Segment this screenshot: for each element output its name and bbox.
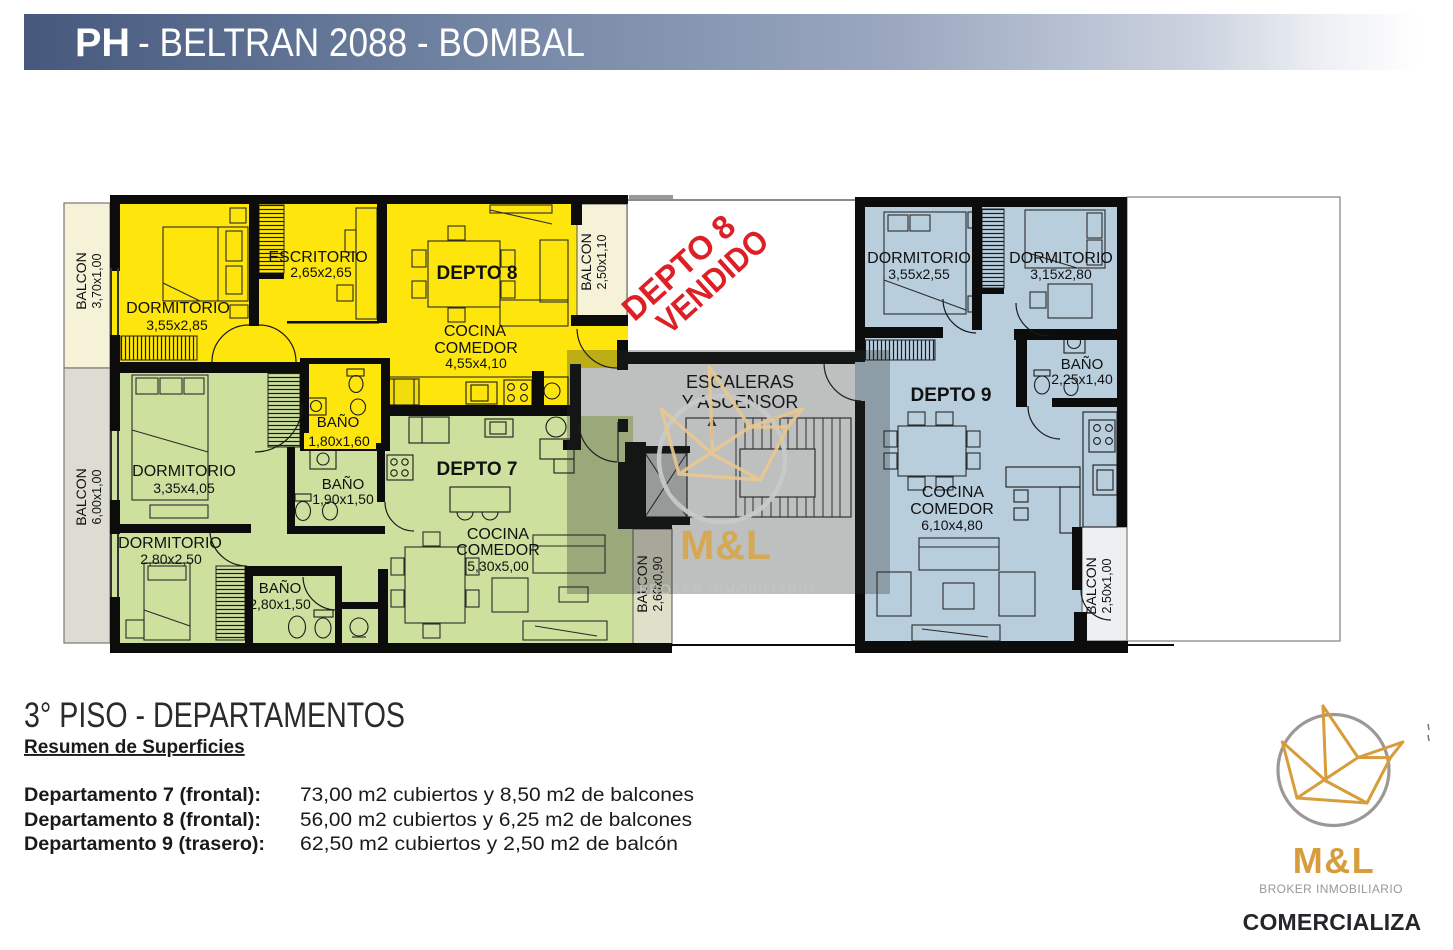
svg-text:COMERCIALIZA: COMERCIALIZA (1243, 909, 1422, 935)
svg-text:BAÑO: BAÑO (259, 580, 302, 597)
svg-text:2,80x1,50: 2,80x1,50 (249, 596, 311, 612)
svg-text:DEPTO 7: DEPTO 7 (437, 459, 518, 480)
svg-text:BALCON: BALCON (73, 468, 89, 526)
svg-text:BROKER INMOBILIARIO: BROKER INMOBILIARIO (1259, 882, 1403, 896)
svg-text:3,55x2,55: 3,55x2,55 (888, 266, 950, 282)
svg-text:1,80x1,60: 1,80x1,60 (308, 433, 370, 449)
svg-text:COCINA: COCINA (444, 323, 507, 340)
svg-text:COMEDOR: COMEDOR (456, 542, 540, 559)
svg-text:73,00 m2 cubiertos y 8,50 m2 d: 73,00 m2 cubiertos y 8,50 m2 de balcones (300, 785, 694, 806)
svg-text:56,00 m2 cubiertos y 6,25 m2 d: 56,00 m2 cubiertos y 6,25 m2 de balcones (300, 810, 692, 831)
svg-text:M&L: M&L (680, 522, 772, 568)
svg-text:PH: PH (75, 21, 130, 65)
svg-text:3,70x1,00: 3,70x1,00 (90, 254, 104, 309)
svg-text:3,15x2,80: 3,15x2,80 (1030, 266, 1092, 282)
svg-text:BROKER INMOBILIARIO: BROKER INMOBILIARIO (639, 582, 815, 597)
svg-text:- BELTRAN 2088 - BOMBAL: - BELTRAN 2088 - BOMBAL (138, 21, 585, 65)
svg-text:1,90x1,50: 1,90x1,50 (312, 491, 374, 507)
svg-text:DORMITORIO: DORMITORIO (118, 535, 222, 552)
svg-text:COCINA: COCINA (467, 526, 530, 543)
svg-text:COCINA: COCINA (922, 484, 985, 501)
svg-text:2,25x1,40: 2,25x1,40 (1051, 371, 1113, 387)
svg-text:3° PISO - DEPARTAMENTOS: 3° PISO - DEPARTAMENTOS (24, 696, 405, 735)
svg-text:COMEDOR: COMEDOR (910, 501, 994, 518)
svg-text:DORMITORIO: DORMITORIO (867, 250, 971, 267)
svg-text:5,30x5,00: 5,30x5,00 (467, 558, 529, 574)
svg-text:BALCON: BALCON (73, 252, 89, 310)
svg-text:62,50 m2 cubiertos y 2,50 m2 d: 62,50 m2 cubiertos y 2,50 m2 de balcón (300, 834, 678, 855)
svg-text:Departamento 7 (frontal):: Departamento 7 (frontal): (24, 785, 261, 806)
svg-text:6,00x1,00: 6,00x1,00 (90, 470, 104, 525)
svg-text:2,65x2,65: 2,65x2,65 (290, 264, 352, 280)
svg-text:DORMITORIO: DORMITORIO (1009, 250, 1113, 267)
svg-text:3,35x4,05: 3,35x4,05 (153, 480, 215, 496)
svg-text:Resumen de Superficies: Resumen de Superficies (24, 737, 245, 758)
svg-text:2,50x1,10: 2,50x1,10 (595, 235, 609, 290)
svg-text:2,80x2,50: 2,80x2,50 (140, 551, 202, 567)
svg-text:DEPTO 9: DEPTO 9 (911, 385, 992, 406)
svg-text:3,55x2,85: 3,55x2,85 (146, 317, 208, 333)
svg-text:Departamento 8 (frontal):: Departamento 8 (frontal): (24, 810, 261, 831)
svg-text:DORMITORIO: DORMITORIO (126, 300, 230, 317)
svg-text:M&L: M&L (1293, 840, 1375, 881)
svg-text:4,55x4,10: 4,55x4,10 (445, 355, 507, 371)
svg-text:6,10x4,80: 6,10x4,80 (921, 517, 983, 533)
svg-text:2,50x1,00: 2,50x1,00 (1100, 559, 1114, 614)
svg-text:Departamento 9 (trasero):: Departamento 9 (trasero): (24, 834, 265, 855)
svg-text:DORMITORIO: DORMITORIO (132, 463, 236, 480)
svg-text:BALCON: BALCON (578, 233, 594, 291)
svg-text:DEPTO 8: DEPTO 8 (437, 263, 518, 284)
svg-text:BAÑO: BAÑO (317, 414, 360, 431)
